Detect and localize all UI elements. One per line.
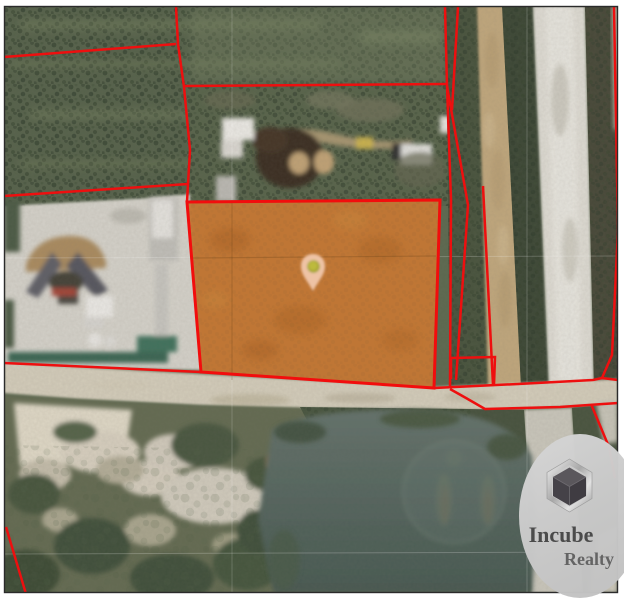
svg-text:Realty: Realty bbox=[564, 549, 614, 569]
svg-text:Incube: Incube bbox=[529, 522, 594, 547]
